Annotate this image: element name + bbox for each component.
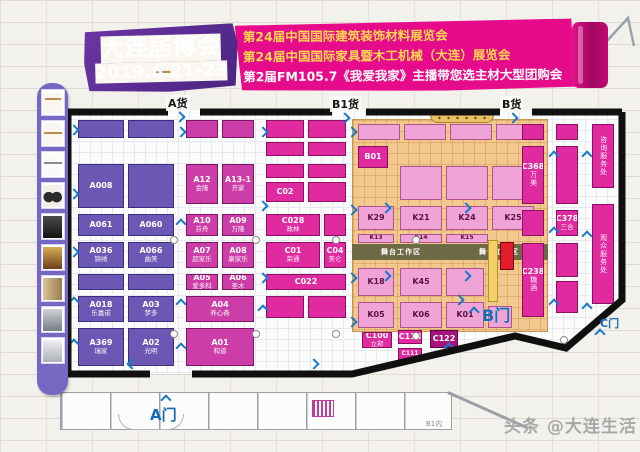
k-zone-banner-tab — [430, 111, 494, 123]
desk-sketch-thumb — [41, 151, 65, 178]
booth-c122[interactable]: C122 — [430, 330, 458, 348]
furniture-thumbnail-strip — [37, 83, 68, 395]
booth-a04[interactable]: A04养心斋 — [186, 296, 254, 322]
booth[interactable] — [400, 166, 442, 200]
booth[interactable] — [266, 296, 304, 318]
cargo-gate-b1-label: B1货 — [330, 96, 361, 112]
booth-a13-1[interactable]: A13-1齐家 — [222, 164, 254, 204]
booth[interactable] — [358, 124, 400, 140]
sofa-photo-thumb — [41, 213, 65, 240]
event-title-block: 大连居博会 2019.6.21-23 — [83, 23, 239, 94]
booth-a061[interactable]: A061 — [78, 214, 124, 236]
chairs-photo-thumb — [41, 182, 65, 209]
booth-a12[interactable]: A12金隆 — [186, 164, 218, 204]
booth[interactable] — [450, 124, 492, 140]
watermark-text: 头条 @大连生活 — [504, 412, 637, 437]
booth[interactable] — [128, 120, 174, 138]
booth[interactable] — [308, 182, 346, 202]
booth-c04[interactable]: C04美仑 — [324, 242, 346, 268]
booth[interactable] — [78, 120, 124, 138]
pillar-marker — [332, 330, 340, 338]
booth-c028[interactable]: C028政林 — [266, 214, 320, 236]
booth[interactable] — [522, 210, 544, 236]
booth-k15[interactable]: K15 — [446, 234, 488, 243]
booth[interactable] — [556, 243, 578, 277]
booth-c238[interactable]: C238糖酒 — [522, 243, 544, 317]
gate-a-label: A门 — [150, 404, 177, 425]
cargo-gate-b-label: B货 — [500, 96, 523, 112]
booth-a066[interactable]: A066曲美 — [128, 242, 174, 268]
booth-c01[interactable]: C01荣通 — [266, 242, 320, 268]
pillar-marker — [560, 336, 568, 344]
bench-sketch-thumb — [41, 89, 65, 116]
interior-photo-thumb — [41, 244, 65, 271]
expo-floorplan-poster: 大连居博会 2019.6.21-23 第24届中国国际建筑装饰材料展览会 第24… — [0, 0, 640, 452]
booth-a10[interactable]: A10芬舟 — [186, 214, 218, 236]
booth-k14[interactable]: K14 — [400, 234, 442, 243]
booth-a369[interactable]: A369瑞家 — [78, 328, 124, 366]
booth[interactable] — [222, 120, 254, 138]
booth[interactable] — [324, 214, 346, 236]
subtitle-line-2: 第24届中国国际家具暨木工机械（大连）展览会 — [243, 44, 567, 67]
booth-c022[interactable]: C022 — [266, 274, 346, 290]
cabinet-photo-thumb — [41, 275, 65, 302]
booth-k13[interactable]: K13 — [358, 234, 394, 243]
pillar-marker — [252, 330, 260, 338]
booth-k45[interactable]: K45 — [400, 268, 442, 296]
booth[interactable]: 咨询服务处 — [592, 124, 614, 188]
booth-a09[interactable]: A09万隆 — [222, 214, 254, 236]
subtitle-line-1: 第24届中国国际建筑装饰材料展览会 — [243, 24, 567, 47]
booth-c368[interactable]: C368万美 — [522, 146, 544, 204]
pillar-marker — [412, 332, 420, 340]
booth-c111[interactable]: C111 — [398, 348, 422, 360]
booth[interactable] — [186, 120, 218, 138]
stage-work-area-label: 舞台工作区 — [381, 247, 421, 257]
booth[interactable] — [488, 240, 498, 302]
booth-k06[interactable]: K06 — [400, 302, 442, 328]
stage-work-area-band: 舞台工作区 舞台工作区 — [352, 244, 548, 260]
booth[interactable] — [78, 274, 124, 290]
booth-a018[interactable]: A018乐嘉诺 — [78, 296, 124, 322]
booth-a03[interactable]: A03梦多 — [128, 296, 174, 322]
event-subtitle-banner: 第24届中国国际建筑装饰材料展览会 第24届中国国际家具暨木工机械（大连）展览会… — [235, 19, 576, 93]
booth[interactable] — [556, 281, 578, 313]
room-label: B1内 — [426, 419, 442, 429]
event-name: 大连居博会 — [100, 34, 221, 63]
pillar-marker — [332, 236, 340, 244]
pillar-marker — [252, 236, 260, 244]
booth-b01[interactable]: B01 — [358, 146, 388, 168]
booth-a05[interactable]: A05爱多科 — [186, 274, 218, 290]
booth[interactable] — [446, 166, 488, 200]
booth-a06[interactable]: A06圣木 — [222, 274, 254, 290]
booth-a036[interactable]: A036锦绣 — [78, 242, 124, 268]
stairs-hatch-block — [312, 400, 334, 417]
booth-k01[interactable]: K01 — [446, 302, 484, 328]
booth[interactable] — [308, 120, 346, 138]
booth[interactable] — [522, 124, 544, 140]
gate-c-label: C门 — [600, 315, 619, 331]
booth-a008[interactable]: A008 — [78, 164, 124, 208]
booth[interactable] — [128, 274, 174, 290]
booth-a07[interactable]: A07超家乐 — [186, 242, 218, 268]
booth-c02[interactable]: C02 — [266, 182, 304, 202]
table-sketch-thumb — [41, 120, 65, 147]
entrance-building-plan — [60, 392, 452, 430]
booth-a01[interactable]: A01和道 — [186, 328, 254, 366]
booth[interactable] — [308, 296, 346, 318]
booth[interactable] — [308, 142, 346, 156]
booth[interactable] — [266, 120, 304, 138]
pillar-marker — [170, 236, 178, 244]
pillar-marker — [412, 236, 420, 244]
paint-roller-icon — [572, 22, 608, 88]
booth-a060[interactable]: A060 — [128, 214, 174, 236]
equipment-photo-thumb — [41, 337, 65, 364]
cargo-gate-a-label: A货 — [166, 95, 190, 111]
booth[interactable] — [128, 164, 174, 208]
pillar-marker — [170, 330, 178, 338]
booth-a08[interactable]: A08康家乐 — [222, 242, 254, 268]
event-dates: 2019.6.21-23 — [95, 60, 228, 83]
booth[interactable]: 观众服务处 — [592, 204, 614, 304]
subtitle-line-3: 第2届FM105.7《我爱我家》主播带您选主材大型团购会 — [243, 64, 567, 87]
booth[interactable] — [500, 242, 514, 270]
booth[interactable] — [404, 124, 446, 140]
gate-b-label: B门 — [482, 302, 510, 326]
machine-photo-thumb — [41, 306, 65, 333]
booth[interactable] — [556, 124, 578, 140]
booth-k05[interactable]: K05 — [358, 302, 394, 328]
booth-c100[interactable]: C100立邦 — [362, 332, 392, 348]
booth[interactable] — [266, 164, 304, 178]
booth-k21[interactable]: K21 — [400, 206, 442, 230]
booth[interactable] — [266, 142, 304, 156]
booth[interactable] — [308, 164, 346, 178]
